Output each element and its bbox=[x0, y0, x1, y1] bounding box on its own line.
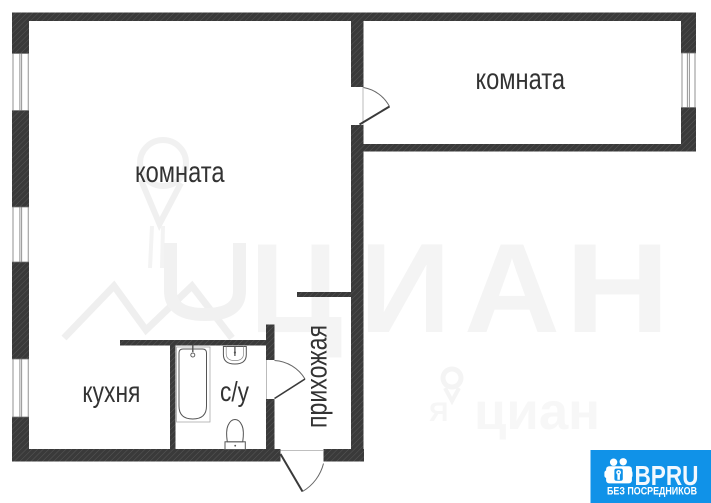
svg-text:с/у: с/у bbox=[220, 376, 249, 407]
svg-text:А: А bbox=[464, 217, 560, 359]
svg-text:БЕЗ ПОСРЕДНИКОВ: БЕЗ ПОСРЕДНИКОВ bbox=[607, 486, 697, 498]
svg-text:прихожая: прихожая bbox=[301, 325, 334, 428]
svg-text:комната: комната bbox=[135, 156, 225, 189]
svg-text:кухня: кухня bbox=[82, 376, 140, 409]
svg-text:комната: комната bbox=[476, 63, 566, 96]
svg-text:циан: циан bbox=[474, 383, 600, 441]
svg-text:Я: Я bbox=[429, 397, 448, 427]
svg-text:И: И bbox=[360, 217, 451, 359]
svg-text:Н: Н bbox=[565, 217, 670, 359]
